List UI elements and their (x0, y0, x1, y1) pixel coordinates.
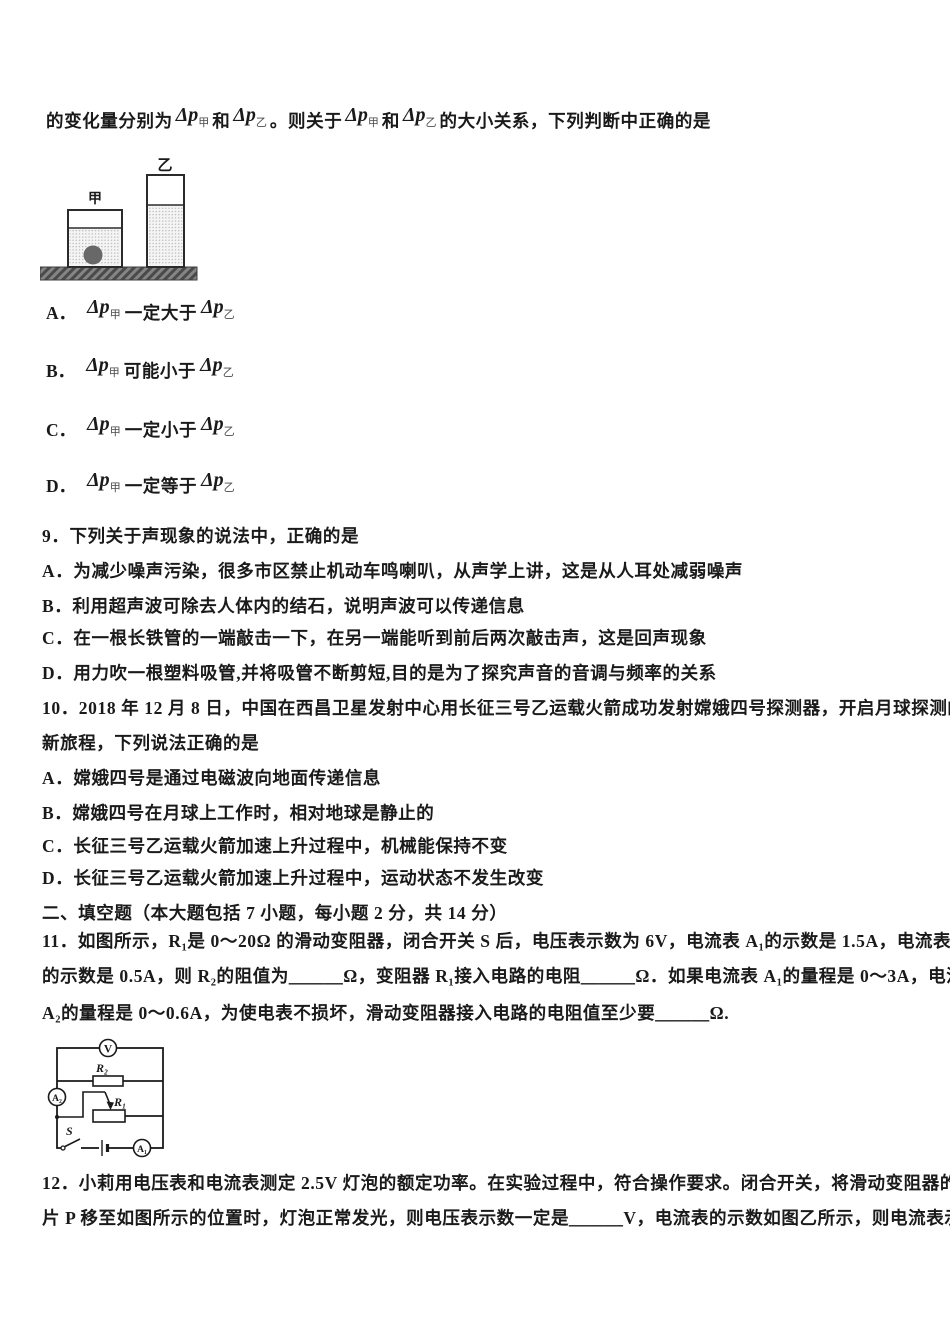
container-jia (68, 210, 122, 267)
ball-in-jia (84, 246, 103, 265)
q12-line2: 片 P 移至如图所示的位置时，灯泡正常发光，则电压表示数一定是＿＿＿V，电流表的… (42, 1205, 950, 1231)
delta-p-yi-formula: Δp乙 (201, 467, 235, 501)
delta-p-yi-formula: Δp乙 (200, 352, 234, 386)
delta-p-yi-formula: Δp乙 (403, 102, 437, 136)
q9-option-c: C．在一根长铁管的一端敲击一下，在另一端能听到前后两次敲击声，这是回声现象 (42, 625, 707, 651)
switch-label: S (66, 1124, 73, 1138)
q12-line1: 12．小莉用电压表和电流表测定 2.5V 灯泡的额定功率。在实验过程中，符合操作… (42, 1170, 950, 1196)
q10-option-d: D．长征三号乙运载火箭加速上升过程中，运动状态不发生改变 (42, 865, 544, 891)
resistor-r2-icon (93, 1076, 123, 1086)
switch-pivot-icon (61, 1146, 65, 1150)
q9-option-b: B．利用超声波可除去人体内的结石，说明声波可以传递信息 (42, 593, 525, 619)
option-letter: B． (46, 361, 75, 381)
voltmeter-label: V (104, 1044, 113, 1056)
delta-p-jia-formula: Δp甲 (87, 467, 121, 501)
option-text: 一定小于 (125, 420, 197, 440)
q8-option-d: D．Δp甲一定等于Δp乙 (46, 473, 238, 507)
ground-surface (40, 267, 197, 280)
section-2-heading: 二、填空题（本大题包括 7 小题，每小题 2 分，共 14 分） (42, 900, 507, 926)
slider-arrow-icon (107, 1102, 115, 1111)
q9-option-a: A．为减少噪声污染，很多市区禁止机动车鸣喇叭，从声学上讲，这是从人耳处减弱噪声 (42, 558, 743, 584)
exam-page: 的变化量分别为Δp甲和Δp乙。则关于Δp甲和Δp乙的大小关系，下列判断中正确的是 (0, 0, 950, 1344)
voltmeter-icon: V (100, 1040, 117, 1057)
container-yi (147, 175, 184, 267)
circuit-outer-wire (57, 1048, 163, 1148)
q10-option-a: A．嫦娥四号是通过电磁波向地面传递信息 (42, 765, 381, 791)
label-jia: 甲 (88, 191, 102, 207)
q10-option-b: B．嫦娥四号在月球上工作时，相对地球是静止的 (42, 800, 434, 826)
delta-p-yi-formula: Δp乙 (201, 294, 235, 328)
rheostat-r1-icon (93, 1110, 125, 1122)
q11-line3: A₂的量程是 0～0.6A，为使电表不损坏，滑动变阻器接入电路的电阻值至少要＿＿… (42, 1000, 729, 1026)
q8-intro-text-3: 和 (382, 111, 400, 131)
option-text: 一定大于 (125, 303, 197, 323)
q8-intro-text-0: 的变化量分别为 (46, 111, 173, 131)
label-yi: 乙 (157, 158, 172, 174)
resistor-r2-label: R₂ (95, 1061, 108, 1075)
q8-option-a: A．Δp甲一定大于Δp乙 (46, 300, 238, 334)
ammeter-a2-label: A₂ (52, 1094, 62, 1104)
circuit-figure: R₂ R₁ S V A₂ (40, 1036, 175, 1163)
option-letter: A． (46, 303, 76, 323)
ammeter-a1-icon: A₁ (134, 1140, 151, 1157)
q11-line1: 11．如图所示，R₁是 0～20Ω 的滑动变阻器，闭合开关 S 后，电压表示数为… (42, 928, 950, 954)
option-text: 一定等于 (125, 476, 197, 496)
rheostat-r1-label: R₁ (113, 1095, 126, 1109)
delta-p-yi-formula: Δp乙 (201, 411, 235, 445)
q11-line2: 的示数是 0.5A，则 R₂的阻值为＿＿＿Ω，变阻器 R₁接入电路的电阻＿＿＿Ω… (42, 963, 950, 989)
q8-option-b: B．Δp甲可能小于Δp乙 (46, 358, 237, 392)
battery-icon (99, 1140, 108, 1156)
q8-intro-text-4: 的大小关系，下列判断中正确的是 (440, 111, 712, 131)
q9-option-d: D．用力吹一根塑料吸管,并将吸管不断剪短,目的是为了探究声音的音调与频率的关系 (42, 660, 717, 686)
containers-figure: 甲 乙 (40, 156, 205, 289)
delta-p-yi-formula: Δp乙 (233, 102, 267, 136)
delta-p-jia-formula: Δp甲 (87, 294, 121, 328)
q8-intro-text-1: 和 (212, 111, 230, 131)
option-letter: D． (46, 476, 76, 496)
ammeter-a1-label: A₁ (137, 1145, 147, 1155)
delta-p-jia-formula: Δp甲 (345, 102, 379, 136)
q10-stem-line2: 新旅程，下列说法正确的是 (42, 730, 259, 756)
q10-stem-line1: 10．2018 年 12 月 8 日，中国在西昌卫星发射中心用长征三号乙运载火箭… (42, 695, 950, 721)
q8-intro-line: 的变化量分别为Δp甲和Δp乙。则关于Δp甲和Δp乙的大小关系，下列判断中正确的是 (46, 108, 711, 142)
delta-p-jia-formula: Δp甲 (176, 102, 210, 136)
q8-intro-text-2: 。则关于 (270, 111, 342, 131)
ammeter-a2-icon: A₂ (49, 1089, 66, 1106)
q8-option-c: C．Δp甲一定小于Δp乙 (46, 417, 238, 451)
q10-option-c: C．长征三号乙运载火箭加速上升过程中，机械能保持不变 (42, 833, 508, 859)
junction-dot (55, 1115, 59, 1119)
delta-p-jia-formula: Δp甲 (86, 352, 120, 386)
q9-stem: 9．下列关于声现象的说法中，正确的是 (42, 523, 359, 549)
delta-p-jia-formula: Δp甲 (87, 411, 121, 445)
option-letter: C． (46, 420, 76, 440)
option-text: 可能小于 (124, 361, 196, 381)
